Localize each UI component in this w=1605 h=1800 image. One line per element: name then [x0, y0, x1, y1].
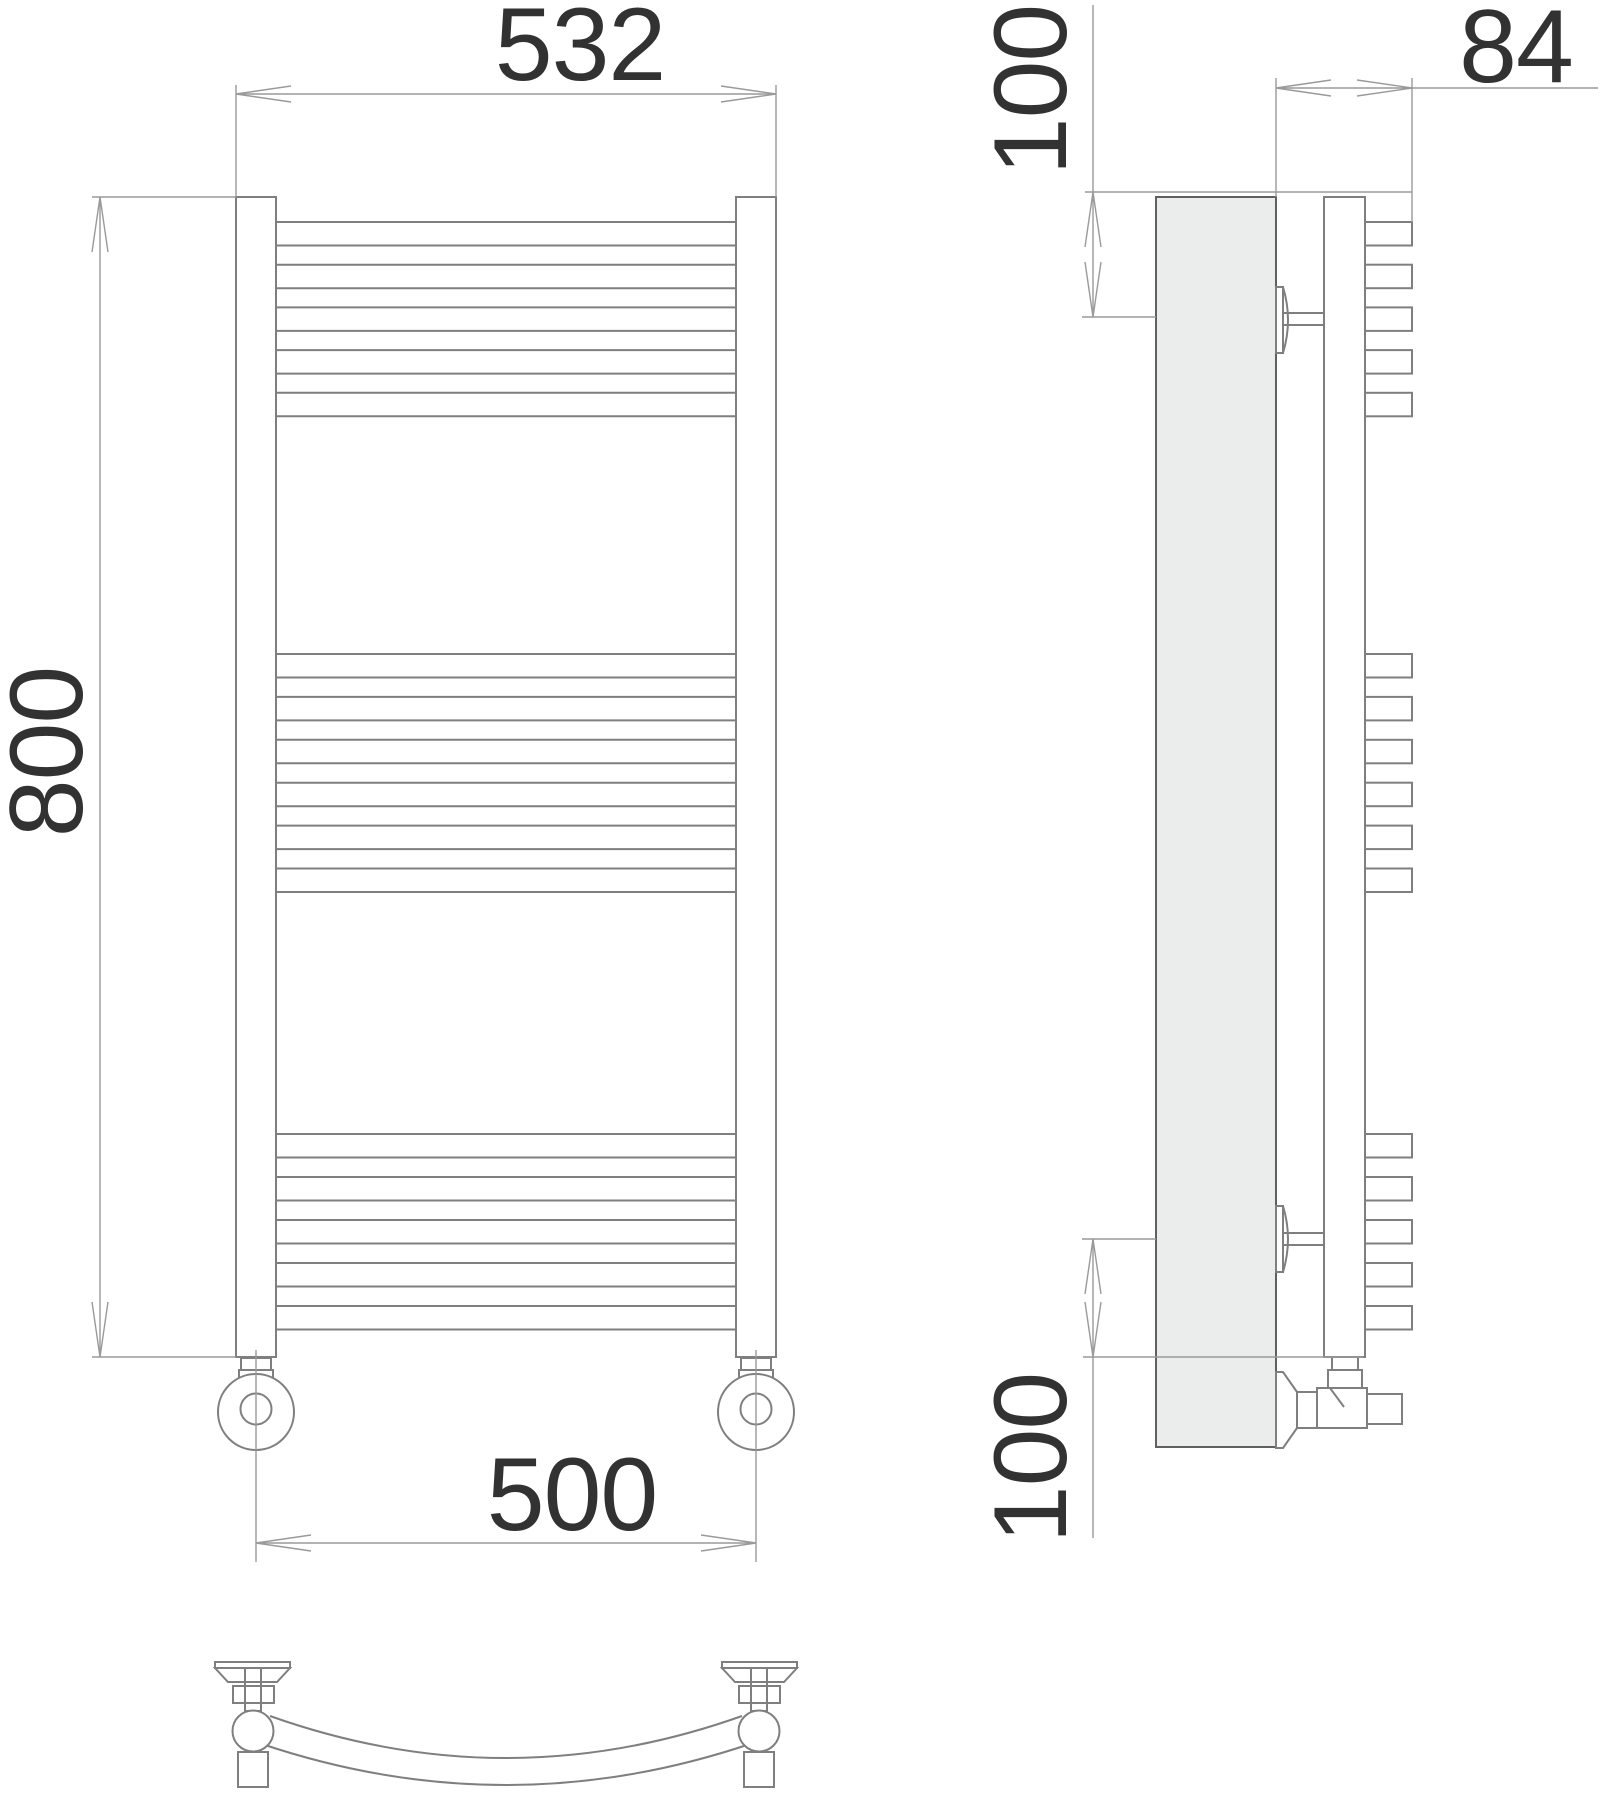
- side-rung-stub: [1365, 1263, 1412, 1287]
- front-rung: [276, 869, 736, 893]
- top-bracket: [1276, 287, 1324, 353]
- front-rung: [276, 393, 736, 417]
- front-rung: [276, 1263, 736, 1287]
- front-rung: [276, 654, 736, 678]
- side-rung-stub: [1365, 783, 1412, 807]
- foot-nut: [739, 1686, 780, 1703]
- valve-body: [1317, 1388, 1367, 1428]
- side-rung-stub: [1365, 1177, 1412, 1201]
- side-rung-stub: [1365, 1306, 1412, 1330]
- side-rung-stub: [1365, 869, 1412, 893]
- side-rung-stub: [1365, 1134, 1412, 1158]
- rail-section-circle: [233, 1711, 274, 1752]
- foot-nut: [233, 1686, 274, 1703]
- plan-left-foot: [215, 1662, 290, 1787]
- wall-plate: [722, 1668, 797, 1682]
- front-rungs: [276, 222, 736, 1330]
- bottom-view: [215, 1662, 797, 1787]
- side-rung-stubs: [1365, 222, 1412, 1330]
- side-rung-stub: [1365, 654, 1412, 678]
- front-rung: [276, 265, 736, 289]
- front-rung: [276, 307, 736, 331]
- valve-neck: [1332, 1357, 1358, 1370]
- front-rung: [276, 1134, 736, 1158]
- valve-top-nut: [1328, 1370, 1362, 1388]
- side-rung-stub: [1365, 1220, 1412, 1244]
- label-overall-height: 800: [0, 667, 105, 838]
- bottom-bracket: [1276, 1206, 1324, 1272]
- side-rung-stub: [1365, 265, 1412, 289]
- foot-stem: [751, 1668, 767, 1711]
- label-overall-width: 532: [495, 0, 666, 103]
- label-bottom-offset: 100: [973, 1373, 1089, 1544]
- dim-800: [92, 197, 236, 1357]
- front-left-rail: [236, 197, 276, 1357]
- side-rung-stub: [1365, 222, 1412, 246]
- foot-block: [238, 1752, 268, 1787]
- front-rung: [276, 350, 736, 374]
- side-rung-stub: [1365, 307, 1412, 331]
- front-right-rail: [736, 197, 776, 1357]
- valve-assembly: [1276, 1357, 1402, 1448]
- front-rung: [276, 1177, 736, 1201]
- plan-right-foot: [722, 1662, 797, 1787]
- side-rung-stub: [1365, 350, 1412, 374]
- valve-outlet: [1367, 1394, 1402, 1424]
- front-rung: [276, 1220, 736, 1244]
- label-connection-spacing: 500: [487, 1437, 658, 1553]
- front-rung: [276, 1306, 736, 1330]
- valve-left-nut: [1297, 1392, 1317, 1428]
- technical-drawing-sheet: 532 800 500 84 100 100: [0, 0, 1605, 1800]
- curved-tube-lower-edge: [262, 1744, 750, 1785]
- wall-wedge-fitting: [1276, 1372, 1297, 1448]
- label-wall-distance: 84: [1459, 0, 1573, 105]
- label-top-offset: 100: [973, 5, 1089, 176]
- side-rung-stub: [1365, 697, 1412, 721]
- wall-plate: [215, 1668, 290, 1682]
- rail-section-circle: [739, 1711, 780, 1752]
- side-rung-stub: [1365, 826, 1412, 850]
- front-view: [218, 197, 794, 1450]
- curved-tube-upper-edge: [270, 1716, 742, 1758]
- front-rung: [276, 740, 736, 764]
- side-rail-tube: [1324, 197, 1365, 1357]
- valve-stem-line: [1330, 1388, 1344, 1407]
- wall-panel: [1156, 197, 1276, 1447]
- front-rung: [276, 697, 736, 721]
- towel-rail-drawing: 532 800 500 84 100 100: [0, 0, 1605, 1800]
- foot-block: [744, 1752, 774, 1787]
- side-view: [1156, 197, 1412, 1448]
- front-rung: [276, 222, 736, 246]
- side-rung-stub: [1365, 740, 1412, 764]
- foot-stem: [245, 1668, 261, 1711]
- side-rung-stub: [1365, 393, 1412, 417]
- front-rung: [276, 826, 736, 850]
- front-rung: [276, 783, 736, 807]
